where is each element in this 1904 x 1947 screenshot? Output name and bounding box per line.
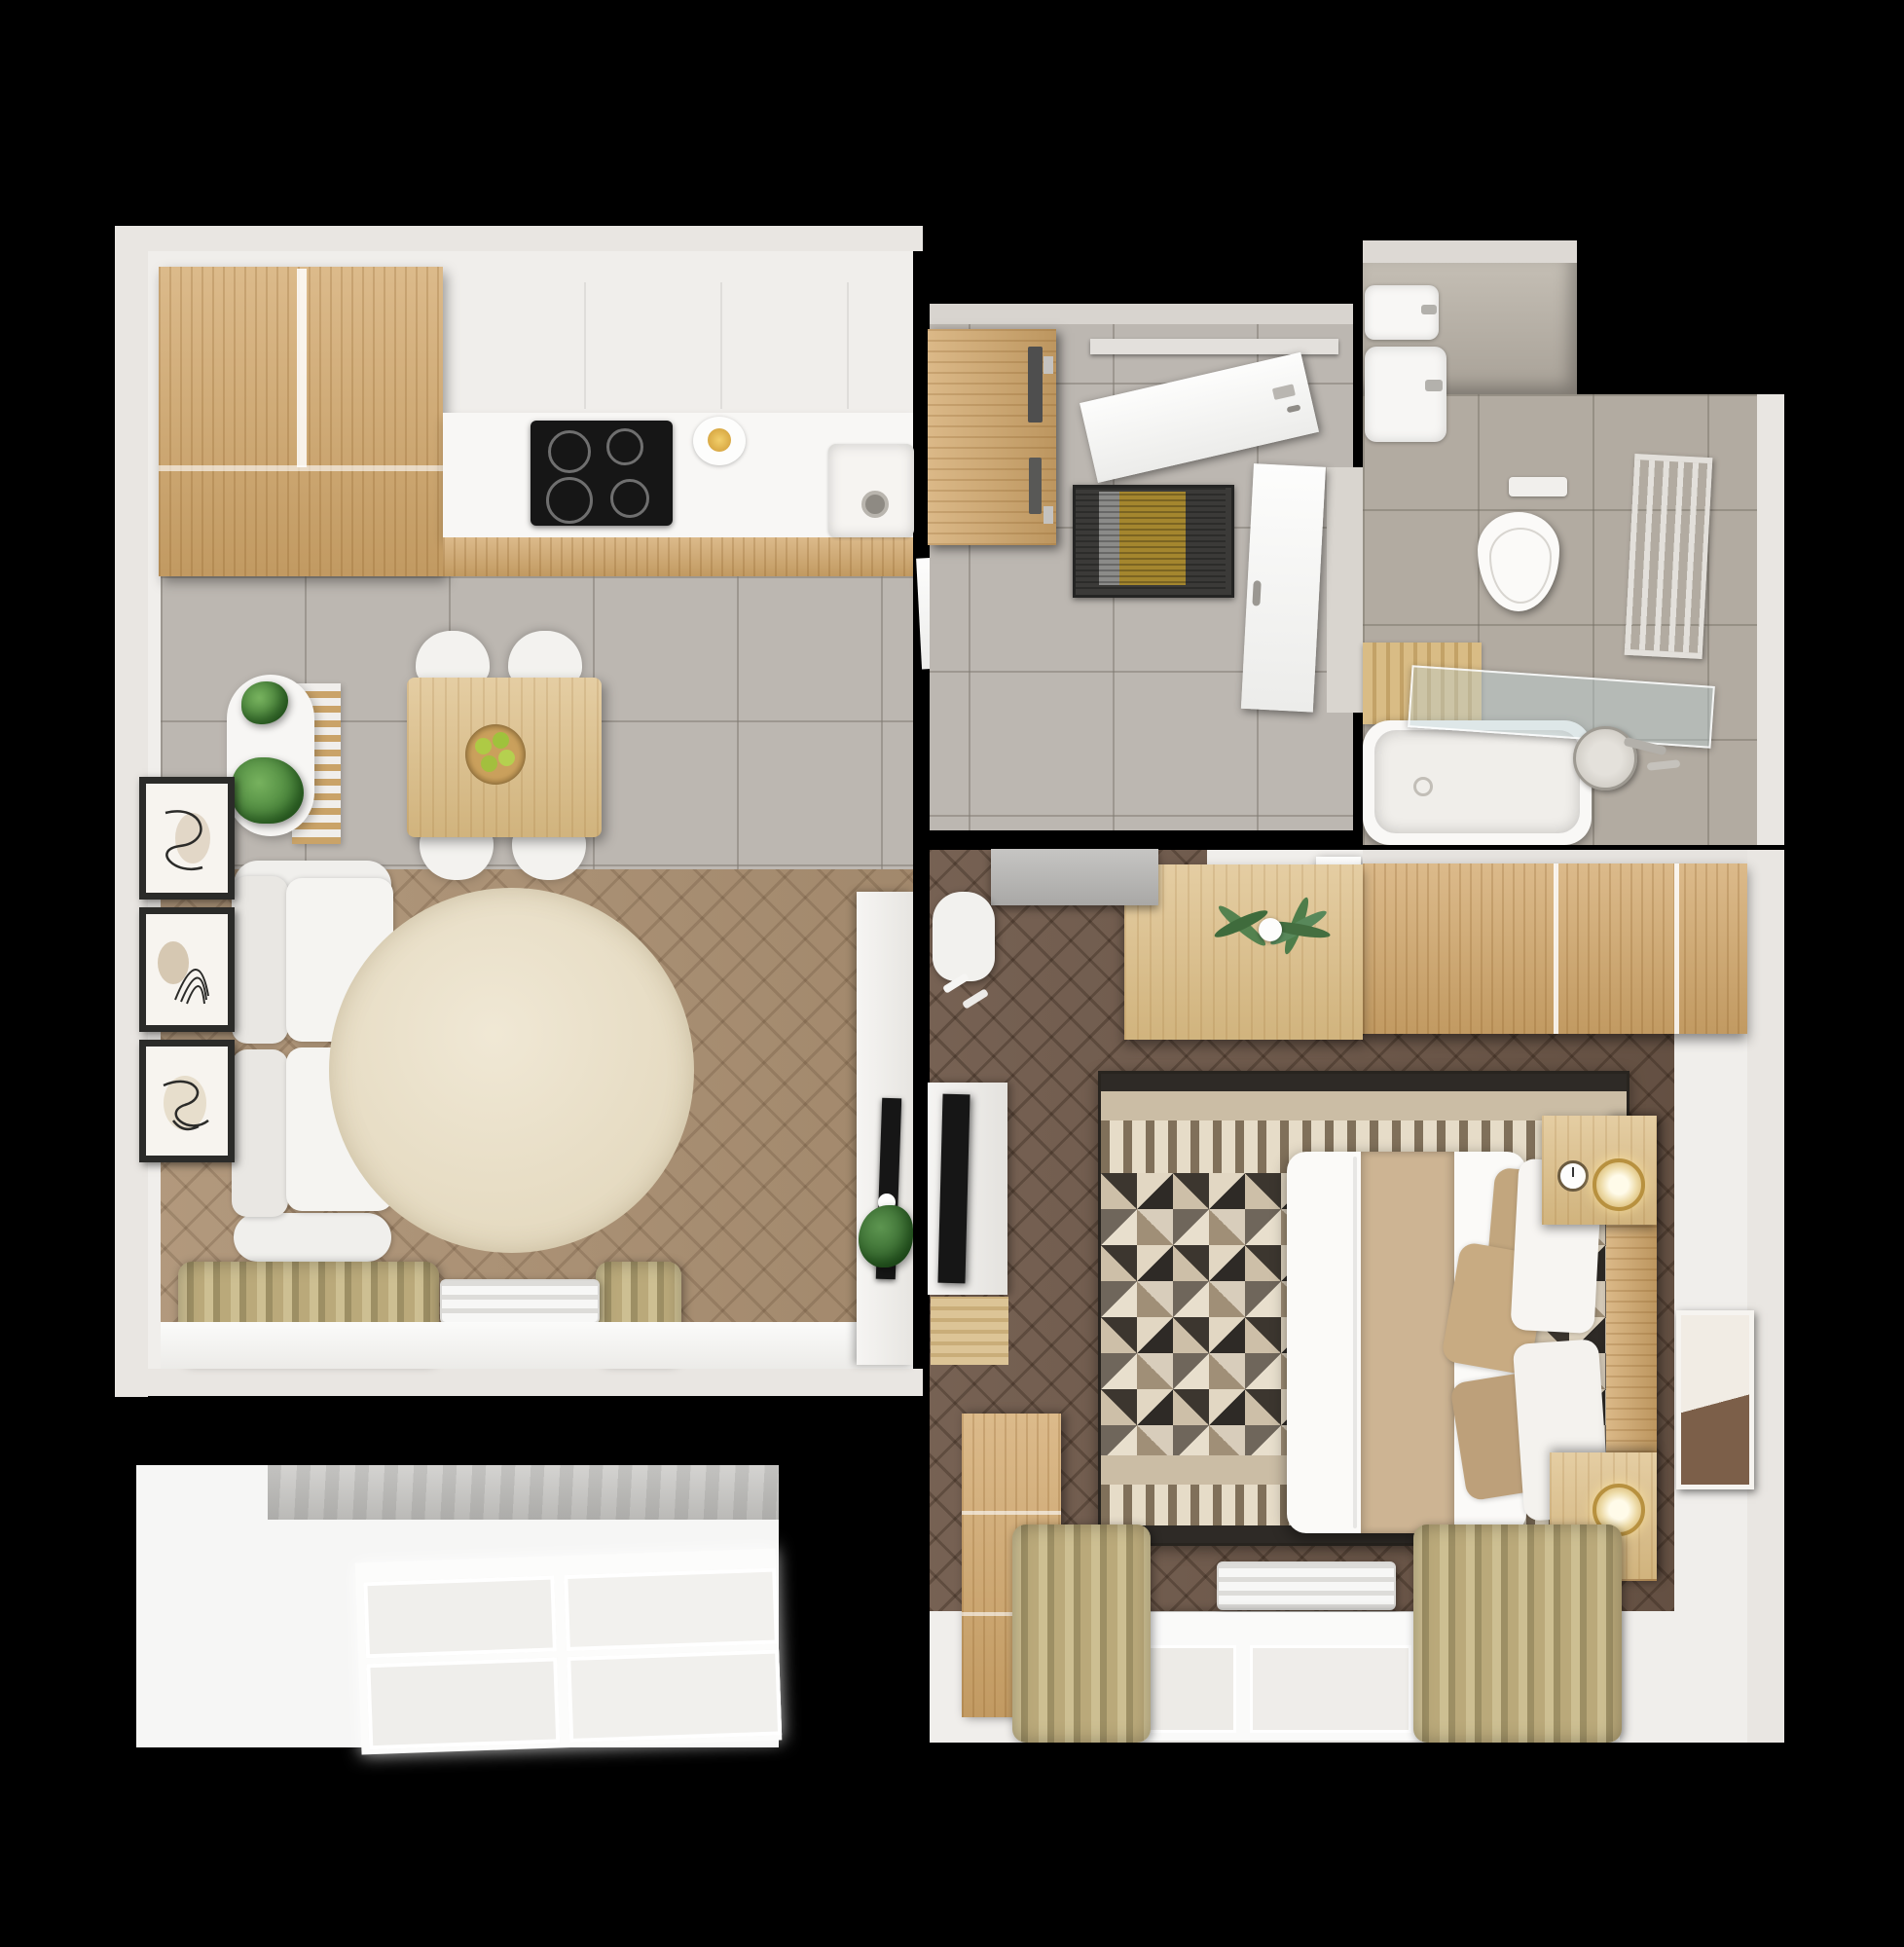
sofa-back-cushion <box>232 1049 288 1217</box>
balcony-window-pane <box>363 1575 557 1658</box>
induction-cooktop <box>531 421 673 526</box>
cooktop-burner <box>548 430 591 473</box>
potted-plant-large <box>232 757 304 824</box>
desk-chair <box>933 892 995 981</box>
alarm-clock <box>1557 1160 1589 1192</box>
palm-plant <box>1212 871 1329 988</box>
balcony-glazing <box>355 1549 783 1755</box>
wall-art-frame-2 <box>139 907 235 1032</box>
basin-faucet <box>1425 380 1443 391</box>
rug-band-dark <box>1101 1074 1627 1091</box>
living-window-sill <box>161 1322 913 1369</box>
entry-door-handle <box>1287 404 1301 413</box>
cooktop-burner <box>546 477 593 524</box>
apple <box>481 755 497 772</box>
hallway-top-wall-face <box>930 304 1353 324</box>
bedroom-curtain-left <box>1012 1525 1151 1743</box>
bedroom-radiator <box>1217 1561 1396 1610</box>
wood-bench-mat <box>931 1297 1008 1365</box>
sink-drain <box>861 491 889 518</box>
entry-door-frame <box>1090 339 1338 354</box>
palm-pot <box>1259 918 1282 941</box>
wall-cabinet-seam <box>584 282 586 409</box>
bathroom-door-open <box>1241 463 1326 713</box>
gray-console-desk <box>991 849 1158 905</box>
abstract-squiggle-art <box>146 1047 228 1156</box>
breakfast-plate <box>693 417 746 465</box>
dresser-seam <box>962 1511 1061 1515</box>
shower-head <box>1573 726 1637 790</box>
sofa-armrest-bottom <box>234 1213 391 1262</box>
kitchen-base-cabinets <box>443 537 913 576</box>
apple <box>475 738 492 754</box>
entry-door-lock <box>1272 384 1296 400</box>
headboard-shelf-top <box>1542 1116 1657 1225</box>
window-pane <box>1250 1645 1411 1733</box>
doormat-weave-lines <box>1076 488 1226 589</box>
toilet-flush-plate <box>1509 477 1567 496</box>
bed-beige-blanket <box>1361 1152 1454 1533</box>
bathtub <box>1363 720 1592 845</box>
wardrobe-hinge <box>1044 506 1053 524</box>
bathroom-door-handle <box>1252 580 1261 606</box>
abstract-arch-art <box>146 914 228 1025</box>
kitchen-sink <box>828 444 914 537</box>
balcony-window-pane <box>564 1568 779 1652</box>
wardrobe-wall-face <box>1363 850 1747 863</box>
fruit-bowl <box>465 724 526 785</box>
cabinet-seam <box>159 465 443 471</box>
bedroom-wall-picture <box>1676 1310 1754 1489</box>
bedroom-wardrobe <box>1363 863 1747 1034</box>
round-cream-rug <box>329 888 694 1253</box>
monstera-plant <box>859 1205 913 1267</box>
sofa-back-cushion <box>232 876 288 1044</box>
outer-wall-bottom-living <box>115 1369 923 1396</box>
bathroom-doorway-threshold <box>1327 467 1363 713</box>
wall-cabinet-seam <box>847 282 849 409</box>
toilet-seat-line <box>1489 528 1552 604</box>
second-basin <box>1365 347 1446 442</box>
outer-wall-top <box>115 226 923 251</box>
bedroom-right-wall-face <box>1747 850 1784 1743</box>
wardrobe-seam <box>1674 863 1679 1034</box>
food-on-plate <box>708 428 731 452</box>
wall-art-frame-1 <box>139 777 235 900</box>
washbasin <box>1365 285 1439 340</box>
apple <box>498 750 515 766</box>
bedside-lamp-top <box>1593 1158 1645 1211</box>
balcony-window-pane <box>567 1649 782 1743</box>
duvet-fold-line <box>1353 1157 1357 1528</box>
striped-doormat <box>1073 485 1234 598</box>
bathtub-drain <box>1413 777 1433 796</box>
balcony-window-pane <box>366 1657 560 1749</box>
cooktop-burner <box>606 428 643 465</box>
clock-hand <box>1572 1167 1574 1177</box>
wardrobe-hinge <box>1044 356 1053 374</box>
bedroom-tv <box>937 1094 970 1284</box>
kitchen-cabinet-block <box>159 267 443 576</box>
apartment-floor-plan <box>0 0 1904 1947</box>
bathroom-top-wall-face <box>1363 240 1577 263</box>
abstract-line-art <box>146 784 228 893</box>
apple <box>493 732 509 749</box>
wardrobe-handle <box>1029 458 1042 514</box>
bathroom-right-wall-face <box>1757 394 1784 845</box>
hallway-wardrobe <box>928 329 1056 545</box>
wall-art-frame-3 <box>139 1040 235 1162</box>
cooktop-burner <box>610 479 649 518</box>
wall-cabinet-seam <box>720 282 722 409</box>
living-radiator <box>440 1279 600 1324</box>
bedroom-curtain-right <box>1413 1525 1622 1743</box>
basin-faucet <box>1421 305 1437 314</box>
towel-radiator <box>1625 454 1713 659</box>
dining-table <box>407 678 602 837</box>
cabinet-seam <box>297 269 307 467</box>
bathtub-basin <box>1374 730 1580 833</box>
wardrobe-handle <box>1028 347 1043 422</box>
wardrobe-seam <box>1554 863 1558 1034</box>
balcony-concrete-strip <box>268 1465 779 1520</box>
